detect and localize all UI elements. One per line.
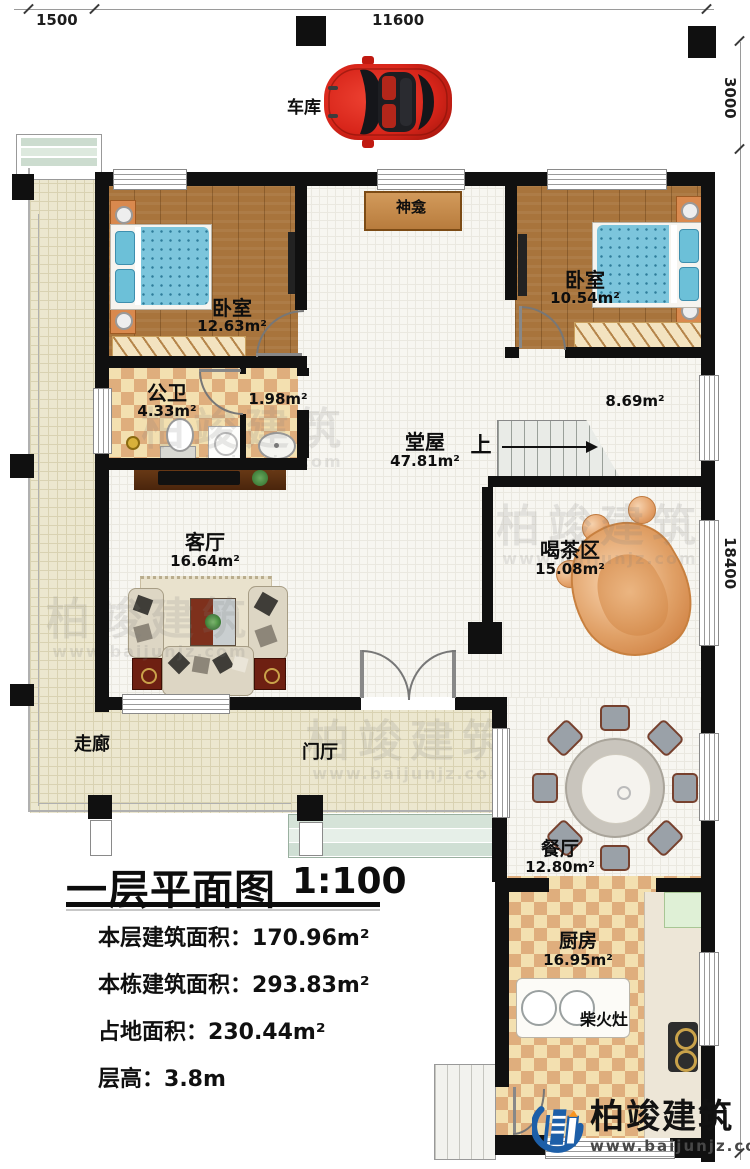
pillow [254, 592, 279, 617]
pillow [254, 624, 277, 647]
wall [482, 487, 493, 622]
sink [664, 892, 704, 928]
plant [252, 470, 268, 486]
top-dimension-line [14, 9, 714, 10]
living-room-area: 16.64m² [165, 554, 245, 570]
wall-pier [468, 622, 502, 654]
wood-stove [516, 978, 630, 1038]
garage-label: 车库 [282, 100, 326, 118]
wall [455, 697, 495, 710]
window [122, 694, 230, 714]
lamp-icon [115, 312, 133, 330]
window [113, 169, 187, 190]
bed-pillow [679, 229, 699, 263]
washbasin [258, 432, 296, 460]
info-value: 293.83m² [252, 973, 369, 998]
corridor-label: 走廊 [56, 736, 128, 755]
info-floor-area: 本层建筑面积：170.96m² [98, 920, 369, 952]
coffee-table [190, 598, 236, 646]
bed-pillow [115, 269, 135, 303]
wall [565, 347, 702, 358]
window [699, 733, 719, 821]
window [699, 952, 719, 1046]
window [492, 728, 510, 818]
column-marker [296, 16, 326, 46]
column [10, 684, 34, 706]
tea-area-name: 喝茶区 [525, 540, 615, 561]
dining-table [565, 738, 665, 838]
brand-logo-icon [532, 1102, 584, 1154]
nightstand [676, 196, 702, 224]
car-top-view [322, 56, 454, 152]
info-label: 占地面积： [98, 1020, 208, 1045]
window [699, 520, 719, 646]
sofa [162, 646, 254, 696]
kitchen-area: 16.95m² [538, 953, 618, 969]
info-value: 3.8m [164, 1067, 226, 1092]
wall [656, 878, 702, 892]
dining-chair [532, 773, 558, 803]
dimension-label-18400: 18400 [721, 537, 739, 597]
column-marker [688, 26, 716, 58]
foyer-label: 门厅 [282, 744, 358, 763]
pillow [231, 655, 248, 672]
info-floor-height: 层高：3.8m [98, 1061, 226, 1093]
door-leaf [513, 1087, 516, 1133]
pillow [192, 656, 211, 675]
tea-stool [628, 496, 656, 524]
bedroom-right-area: 10.54m² [545, 291, 625, 307]
info-label: 本层建筑面积： [98, 926, 252, 951]
dining-area: 12.80m² [520, 860, 600, 876]
plant [205, 614, 221, 630]
kitchen-name: 厨房 [538, 932, 618, 952]
wall [95, 458, 307, 470]
lamp-icon [115, 206, 133, 224]
wall [95, 356, 307, 368]
living-room-name: 客厅 [165, 532, 245, 553]
column [10, 454, 34, 478]
wash-area-label: 1.98m² [248, 392, 308, 408]
info-footprint-area: 占地面积：230.44m² [98, 1014, 325, 1046]
wall [295, 185, 307, 310]
column [297, 795, 323, 821]
dimension-label-3000: 3000 [721, 77, 739, 125]
shrine-label: 神龛 [364, 200, 458, 216]
window [699, 375, 719, 461]
nightstand [110, 306, 136, 334]
dining-chair [672, 773, 698, 803]
bathroom-name: 公卫 [132, 383, 202, 404]
wall [297, 368, 309, 376]
bedroom-right-name: 卧室 [545, 270, 625, 291]
column-base [90, 820, 112, 856]
dining-chair [600, 705, 630, 731]
tea-area-area: 15.08m² [525, 562, 615, 578]
right-dimension-line [740, 42, 741, 1160]
brand-logo: 柏竣建筑 www.baijunjz.com [532, 1100, 750, 1155]
window [93, 388, 112, 454]
info-value: 170.96m² [252, 926, 369, 951]
tv [158, 471, 240, 485]
column [12, 174, 34, 200]
kitchen-back-steps [434, 1064, 496, 1160]
floor-drain [126, 436, 140, 450]
stair-arrow [502, 446, 588, 448]
door-leaf [199, 369, 241, 372]
wall [488, 476, 702, 487]
burner-icon [675, 1050, 697, 1072]
armchair [248, 586, 288, 660]
hall-area: 47.81m² [385, 454, 465, 470]
bedroom-left-area: 12.63m² [192, 319, 272, 335]
toilet-bowl [166, 418, 194, 452]
info-label: 层高： [98, 1067, 164, 1092]
bathroom-area: 4.33m² [132, 404, 202, 420]
wardrobe [574, 322, 704, 348]
pillow [212, 652, 234, 674]
info-building-area: 本栋建筑面积：293.83m² [98, 967, 369, 999]
brand-name: 柏竣建筑 [590, 1100, 750, 1134]
side-table [254, 658, 286, 690]
title-underline [66, 902, 380, 907]
burner-icon [675, 1028, 697, 1050]
info-value: 230.44m² [208, 1020, 325, 1045]
column [88, 795, 112, 819]
upper-area-label: 8.69m² [598, 394, 672, 410]
wood-stove-label: 柴火灶 [566, 1012, 642, 1029]
dimension-label-1500: 1500 [36, 11, 78, 29]
window [377, 169, 465, 190]
column-base [299, 822, 323, 856]
corridor-railing [28, 168, 30, 812]
pillow [133, 595, 154, 616]
title-underline-shadow [66, 909, 380, 911]
stairs-up-label: 上 [468, 434, 494, 456]
gas-stove [668, 1022, 698, 1072]
dining-name: 餐厅 [520, 840, 600, 860]
wall [505, 185, 517, 300]
door-leaf [256, 353, 302, 356]
wall [240, 414, 246, 460]
duvet [139, 227, 209, 305]
tv [518, 234, 527, 296]
wall [495, 882, 509, 1087]
pillow [133, 623, 153, 643]
brand-website: www.baijunjz.com [590, 1137, 750, 1155]
plan-scale: 1:100 [292, 861, 407, 902]
floor-plan: 1500 11600 3000 18400 车库 [0, 0, 750, 1169]
info-label: 本栋建筑面积： [98, 973, 252, 998]
corridor-railing [38, 214, 39, 806]
stove-pot-icon [521, 990, 557, 1026]
hall-name: 堂屋 [385, 432, 465, 453]
wall [505, 347, 519, 358]
sheet-fold [135, 227, 141, 305]
plan-title: 一层平面图 [66, 856, 276, 916]
window [547, 169, 667, 190]
armchair [128, 588, 164, 658]
bedroom-left-name: 卧室 [192, 298, 272, 319]
stair-arrow-head [586, 441, 598, 453]
side-table [132, 658, 162, 690]
wall [297, 410, 309, 458]
bed-pillow [115, 231, 135, 265]
bed-pillow [679, 267, 699, 301]
sheet-fold [671, 225, 677, 303]
dining-chair [600, 845, 630, 871]
washing-machine [208, 426, 242, 460]
door-leaf [519, 306, 522, 348]
corridor-railing [38, 803, 291, 804]
lamp-icon [681, 202, 699, 220]
dimension-label-11600: 11600 [372, 11, 424, 29]
pillow [168, 652, 191, 675]
